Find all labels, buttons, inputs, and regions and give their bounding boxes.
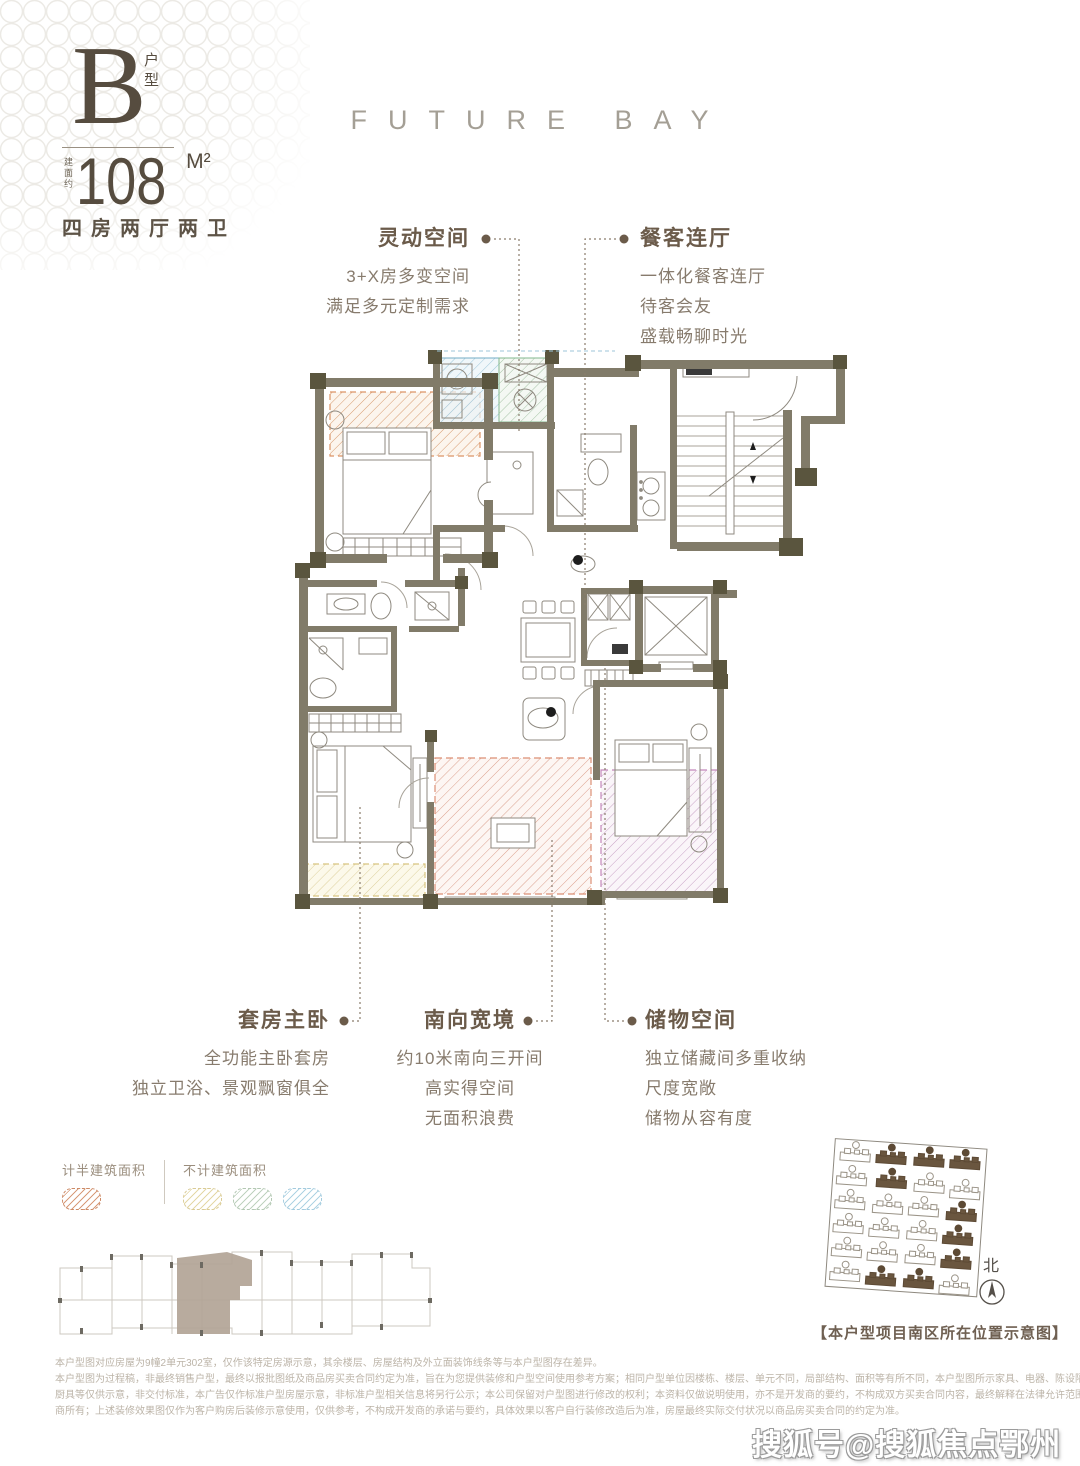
feature-line: 全功能主卧套房 [50,1044,330,1074]
feature-line: 独立储藏间多重收纳 [645,1044,905,1074]
feature-line: 尺度宽敞 [645,1074,905,1104]
legend-half-area: 计半建筑面积 [62,1160,146,1210]
north-label: 北 [972,1252,1012,1276]
feature-line: 满足多元定制需求 [210,292,470,322]
feature-storage: 储物空间 独立储藏间多重收纳 尺度宽敞 储物从容有度 [645,1004,905,1134]
feature-line: 3+X房多变空间 [210,262,470,292]
north-compass: 北 [972,1252,1012,1311]
unit-type-suffix: 户型 [140,52,161,92]
disclaimer-line: 本户型图对应房屋为9幢2单元302室，仅作该特定房源示意，其余楼层、房屋结构及外… [55,1356,1065,1372]
compass-icon [978,1278,1006,1306]
feature-line: 独立卫浴、景观飘窗俱全 [50,1074,330,1104]
legend-swatch-yellow [183,1188,222,1210]
unit-area-prefix: 建面约 [62,157,75,190]
legend-swatch-half [62,1188,101,1210]
disclaimer: 本户型图对应房屋为9幢2单元302室，仅作该特定房源示意，其余楼层、房屋结构及外… [55,1356,1065,1420]
floor-plan [285,350,870,910]
feature-line: 盛载畅聊时光 [640,322,900,352]
unit-area-value: 108 [76,148,166,214]
feature-flexible-space: 灵动空间 3+X房多变空间 满足多元定制需求 [210,222,470,322]
feature-title: 餐客连厅 [640,222,900,252]
zone-bay-yellow [303,864,425,896]
zone-utility-green [499,358,553,422]
watermark: 搜狐号@搜狐焦点鄂州站 [752,1420,1080,1466]
legend-excluded-label: 不计建筑面积 [183,1160,322,1179]
legend-divider [164,1160,165,1204]
feature-title: 套房主卧 [50,1004,330,1034]
unit-area-unit: M² [186,150,211,173]
feature-master-suite: 套房主卧 全功能主卧套房 独立卫浴、景观飘窗俱全 [50,1004,330,1104]
unit-area: 108M² [76,148,211,214]
feature-title: 南向宽境 [372,1004,568,1034]
feature-title: 灵动空间 [210,222,470,252]
feature-line: 约10米南向三开间 [372,1044,568,1074]
legend-swatch-blue [283,1188,322,1210]
poster-canvas: B 户型 建面约 108M² 四房两厅两卫 FUTURE BAY 灵动空间 3+… [0,0,1080,1466]
brand-title: FUTURE BAY [290,105,790,136]
feature-line: 储物从容有度 [645,1104,905,1134]
legend: 计半建筑面积 不计建筑面积 [62,1160,322,1210]
disclaimer-line: 厨具等仅供示意，非交付标准，本广告仅作标准户型房屋示意，非标准户型相关信息将另行… [55,1388,1065,1404]
feature-dining-living: 餐客连厅 一体化餐客连厅 待客会友 盛载畅聊时光 [640,222,900,352]
feature-line: 高实得空间 [372,1074,568,1104]
unit-type-letter: B [72,30,147,142]
feature-line: 待客会友 [640,292,900,322]
disclaimer-line: 本户型图为过程稿，非最终销售户型，最终以报批图纸及商品房买卖合同约定为准，旨在为… [55,1372,1065,1388]
legend-excluded: 不计建筑面积 [183,1160,322,1210]
legend-half-area-label: 计半建筑面积 [62,1160,146,1179]
key-plan [52,1238,437,1343]
feature-line: 一体化餐客连厅 [640,262,900,292]
site-plan-caption: 【本户型项目南区所在位置示意图】 [812,1322,1068,1343]
feature-title: 储物空间 [645,1004,905,1034]
disclaimer-line: 商所有；上述装修效果图仅作为客户购房后装修示意使用，仅供参考，不构成开发商的承诺… [55,1404,1065,1420]
feature-line: 无面积浪费 [372,1104,568,1134]
legend-swatch-green [233,1188,272,1210]
feature-south-facing: 南向宽境 约10米南向三开间 高实得空间 无面积浪费 [372,1004,568,1134]
key-plan-highlight [177,1252,252,1334]
